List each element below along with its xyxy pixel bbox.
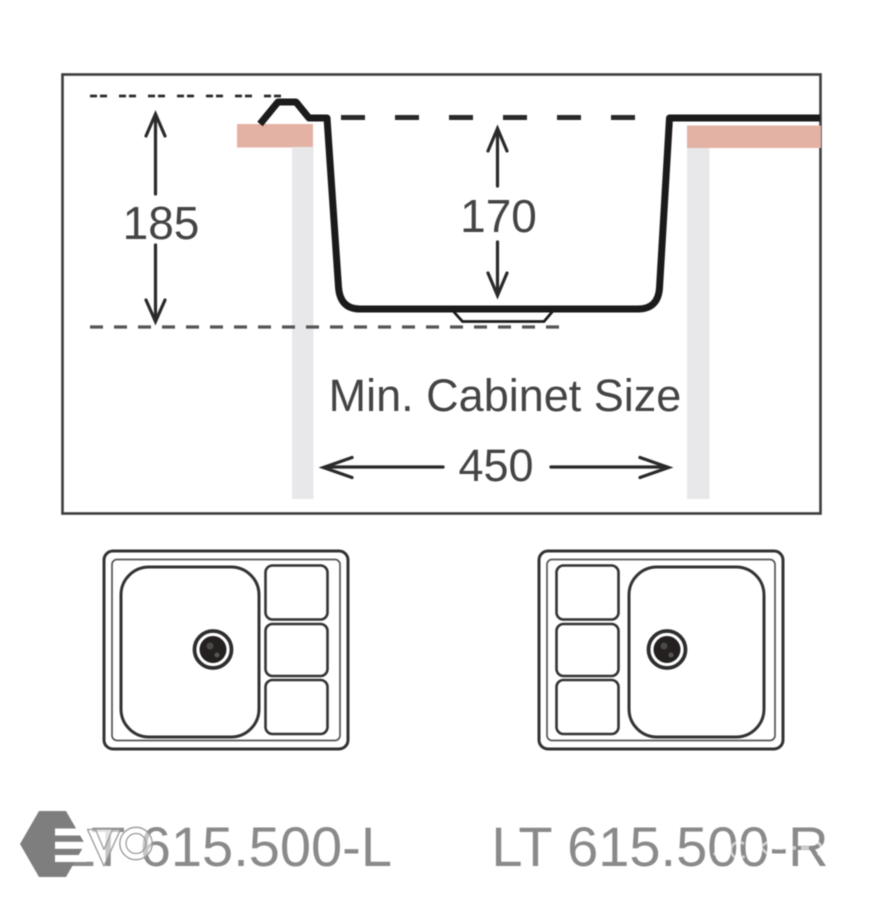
svg-text:Min. Cabinet Size: Min. Cabinet Size xyxy=(329,370,682,421)
svg-text:450: 450 xyxy=(458,440,533,491)
svg-text:170: 170 xyxy=(460,190,537,242)
svg-text:185: 185 xyxy=(123,197,200,249)
